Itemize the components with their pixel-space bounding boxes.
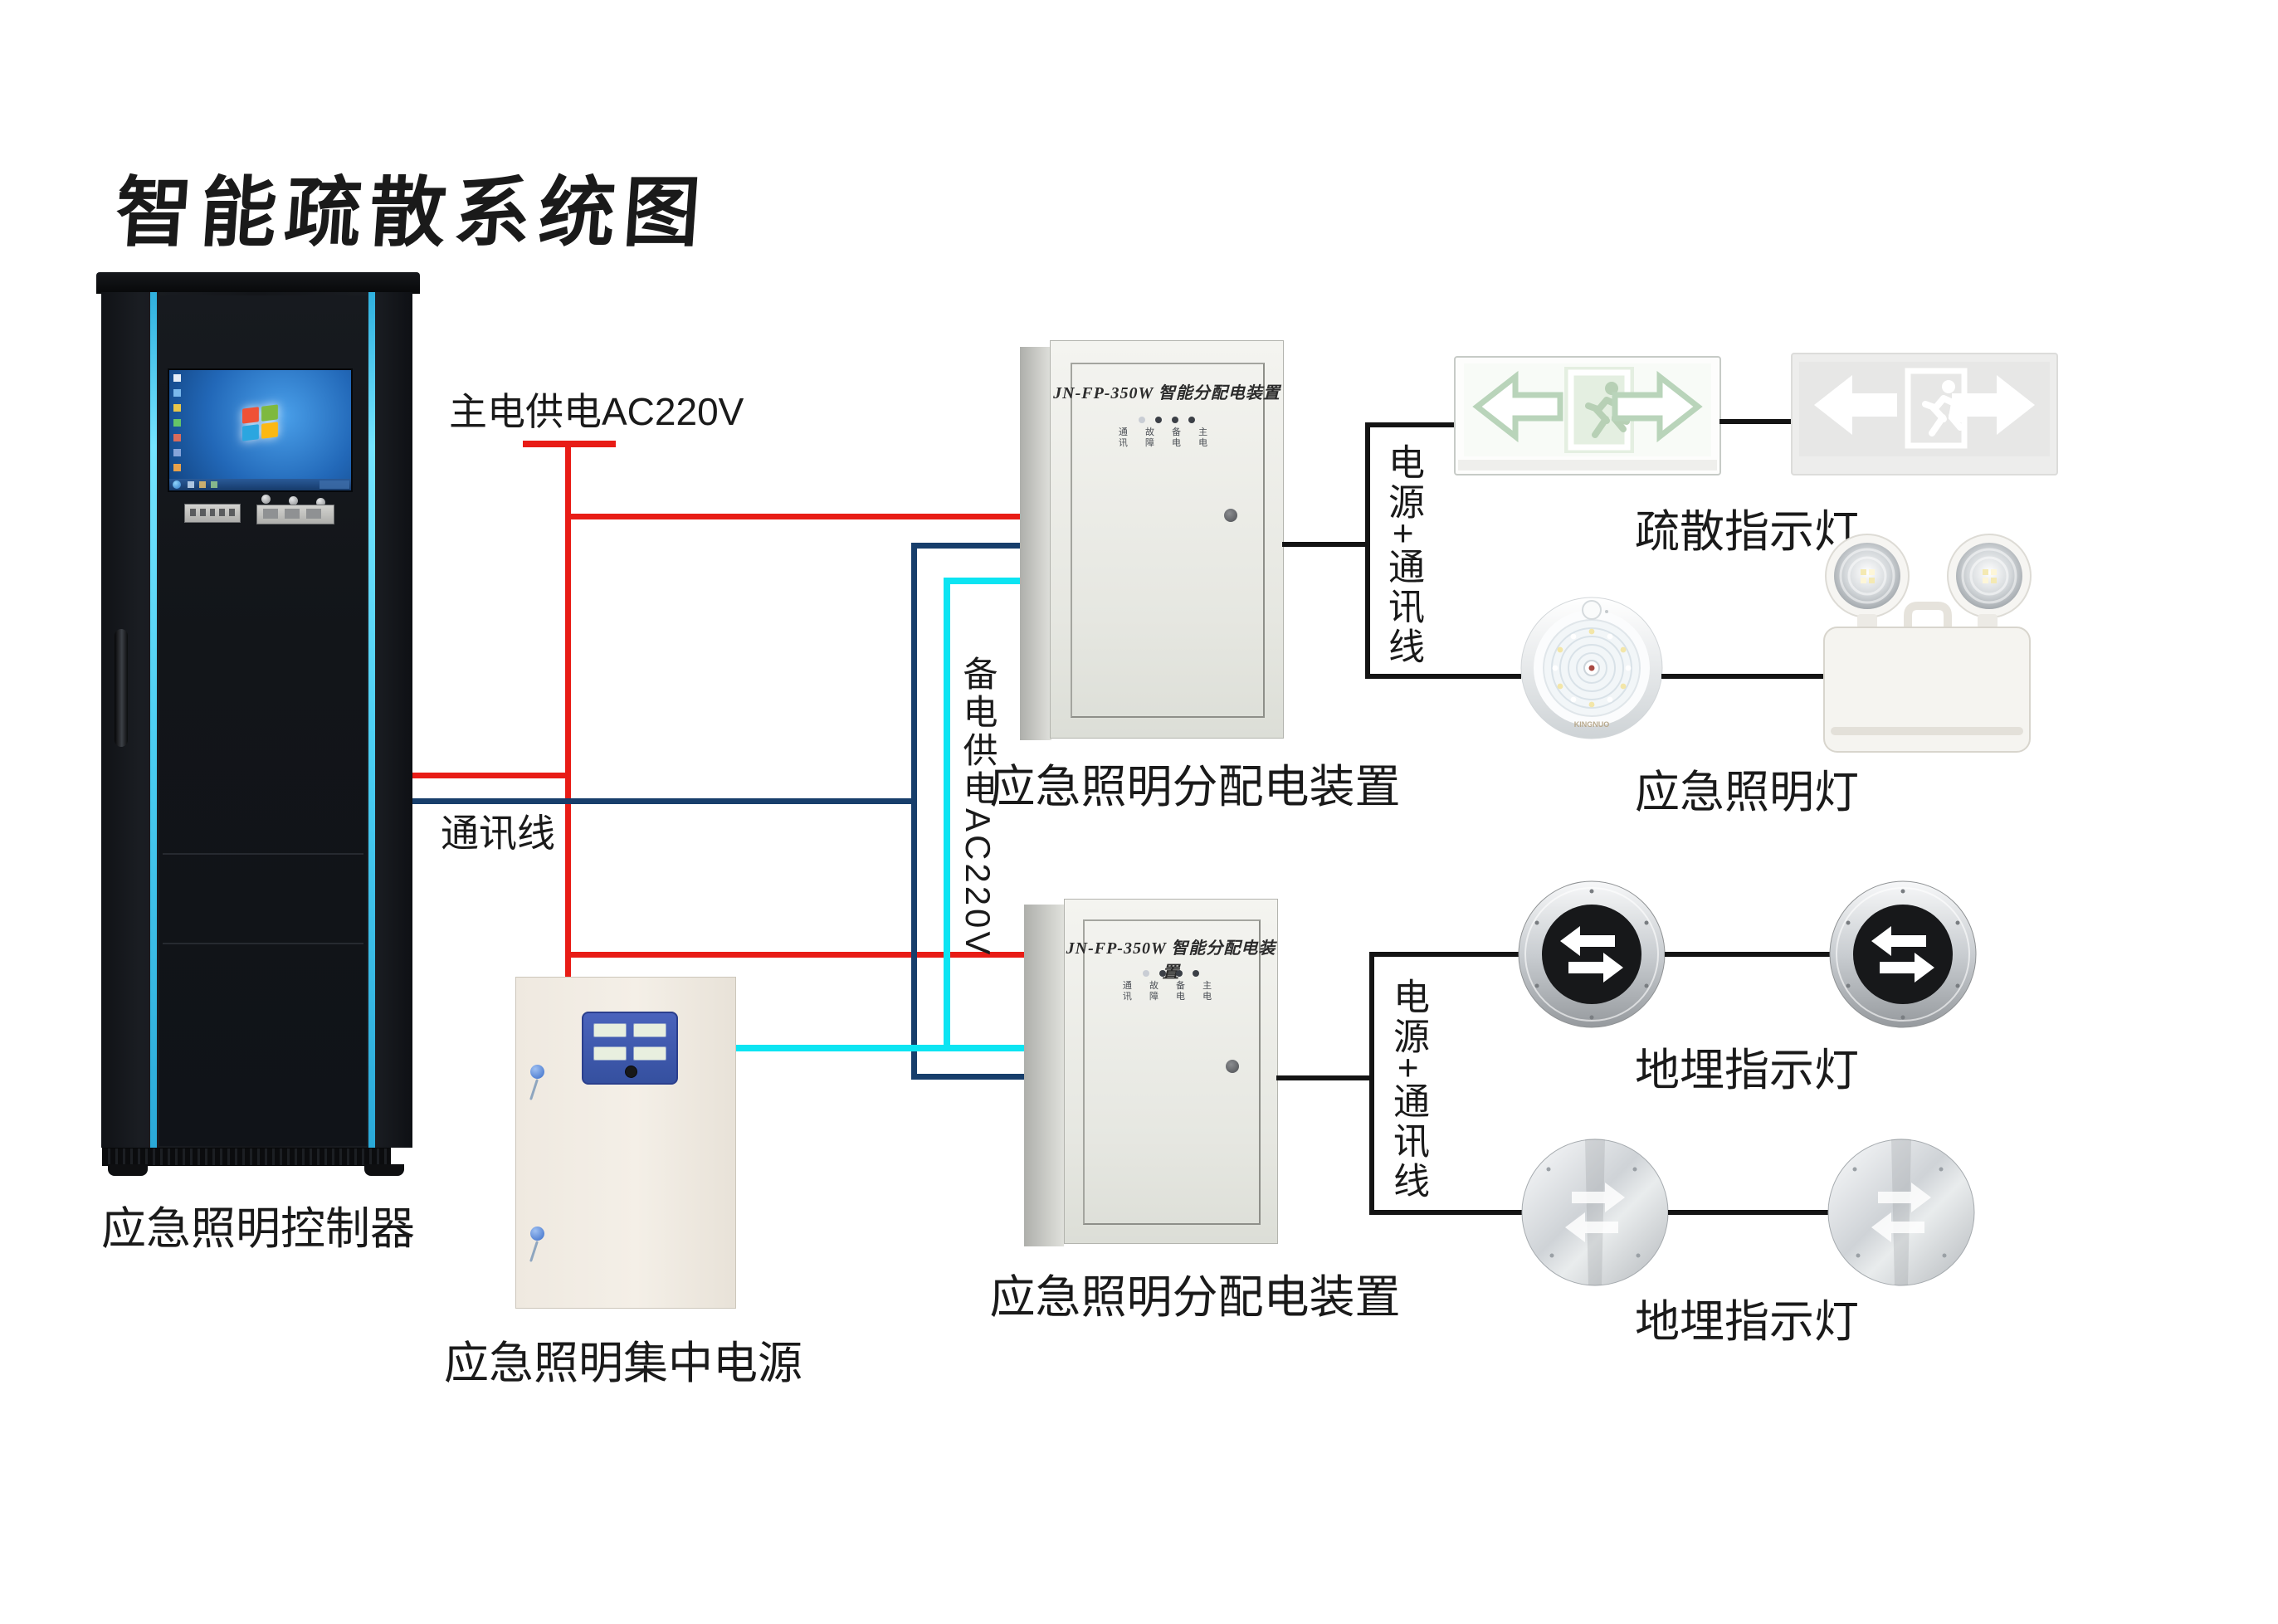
psu-display	[593, 1023, 627, 1037]
dome-center-indicator	[1589, 666, 1595, 671]
power-comm-label-2: 电源+通讯线	[1381, 978, 1434, 1218]
bracket2-spine	[1369, 952, 1374, 1215]
exit-sign-unlit	[1791, 352, 2058, 476]
dome-test-button	[1583, 601, 1601, 619]
twin-head-emergency-light	[1822, 529, 2032, 757]
wire-comm-to-box1	[911, 543, 1022, 549]
desktop-icons-column	[173, 374, 185, 474]
distribution-box-1-side	[1020, 347, 1051, 740]
windows-logo-icon	[242, 404, 278, 441]
buried-light-label-1: 地埋指示灯	[1622, 1033, 1871, 1099]
wire-backup-from-psu	[734, 1045, 1027, 1051]
wire-box2-to-bracket	[1276, 1075, 1374, 1080]
system-tray	[320, 480, 349, 489]
taskbar-icon	[188, 481, 194, 488]
wire-dome-to-twin-light	[1661, 674, 1824, 679]
cabinet-door-seam	[163, 853, 363, 855]
wire-buried2-to-buried2b	[1668, 1210, 1828, 1215]
cabinet-foot	[364, 1164, 404, 1176]
buried-light-label-2: 地埋指示灯	[1622, 1285, 1871, 1350]
wire-main-power-from-cabinet	[412, 773, 568, 778]
power-supply-label: 应急照明集中电源	[444, 1326, 801, 1392]
distribution-box-1-header: JN-FP-350W 智能分配电装置	[1051, 379, 1283, 403]
psu-lock	[530, 1065, 544, 1079]
wire-comm-vertical	[911, 543, 917, 1080]
main-power-wire-label: 主电供电AC220V	[449, 382, 744, 436]
cabinet-button-panel-right	[256, 505, 334, 524]
psu-display	[593, 1046, 627, 1061]
psu-knob	[625, 1066, 637, 1078]
dome-brand-text: KINGNUO	[1574, 720, 1610, 729]
taskbar-icon	[211, 481, 217, 488]
wire-exit-sign-to-exit-sign	[1719, 419, 1791, 424]
wire-box1-to-bracket	[1282, 542, 1368, 547]
wire-main-power-vertical	[565, 441, 571, 980]
distribution-box-2: JN-FP-350W 智能分配电装置 通 故 备 主 讯 障 电 电	[1064, 899, 1278, 1244]
power-comm-label-1: 电源+通讯线	[1376, 443, 1429, 684]
distribution-box-1-indicators: 通 故 备 主 讯 障 电 电	[1051, 412, 1283, 449]
wire-comm-to-box2	[911, 1074, 1024, 1080]
psu-control-panel	[582, 1012, 678, 1085]
twin-light-head-right	[1948, 534, 2031, 629]
cabinet-label: 应急照明控制器	[101, 1192, 415, 1257]
wire-bracket2-to-buried-light-1	[1369, 952, 1519, 957]
twin-light-head-left	[1826, 534, 1909, 629]
distribution-box-2-keyhole	[1226, 1060, 1239, 1073]
distribution-box-1-label: 应急照明分配电装置	[975, 749, 1415, 816]
wire-bracket1-to-exit-sign	[1365, 422, 1454, 427]
buried-light-steel	[1520, 1138, 1670, 1287]
distribution-box-1-keyhole	[1224, 509, 1237, 522]
central-power-supply	[515, 977, 736, 1309]
taskbar-icon	[199, 481, 206, 488]
wire-main-power-to-box1	[565, 514, 1022, 519]
cabinet-top-cap	[96, 272, 420, 294]
distribution-box-2-indicators: 通 故 备 主 讯 障 电 电	[1065, 966, 1277, 1002]
bracket1-spine	[1365, 422, 1370, 679]
cabinet-knob	[261, 495, 271, 504]
evacuation-system-diagram: 智能疏散系统图	[0, 0, 2278, 1624]
cabinet-led-strip-right	[368, 292, 375, 1148]
buried-light-black	[1828, 880, 1978, 1029]
psu-display	[633, 1046, 666, 1061]
start-orb-icon	[173, 480, 181, 489]
psu-lock	[530, 1227, 544, 1241]
wire-backup-to-box1	[944, 578, 1022, 584]
cabinet-button-panel-left	[184, 504, 241, 523]
twin-light-handle	[1908, 606, 1948, 627]
distribution-box-2-label: 应急照明分配电装置	[975, 1260, 1415, 1326]
distribution-box-1: JN-FP-350W 智能分配电装置 通 故 备 主 讯 障 电 电	[1050, 340, 1284, 739]
cabinet-vent	[102, 1148, 391, 1166]
cabinet-monitor-screen	[168, 368, 353, 492]
exit-sign-lit	[1454, 354, 1721, 478]
psu-key	[529, 1241, 539, 1262]
distribution-box-2-side	[1024, 905, 1064, 1246]
buried-light-black	[1517, 880, 1666, 1029]
cabinet-door-handle	[115, 629, 128, 747]
psu-display	[633, 1023, 666, 1037]
cabinet-door-seam	[163, 943, 363, 944]
psu-key	[529, 1079, 539, 1100]
comm-wire-label: 通讯线	[441, 803, 555, 858]
wire-backup-vertical	[944, 578, 950, 1051]
page-title: 智能疏散系统图	[112, 151, 712, 261]
cabinet-foot	[108, 1164, 148, 1176]
wire-buried1-to-buried1b	[1665, 952, 1830, 957]
taskbar	[169, 479, 351, 490]
dome-emergency-light: KINGNUO	[1520, 597, 1663, 739]
buried-light-steel	[1827, 1138, 1976, 1287]
cabinet-led-strip-left	[150, 292, 157, 1148]
emergency-light-label: 应急照明灯	[1622, 755, 1871, 821]
